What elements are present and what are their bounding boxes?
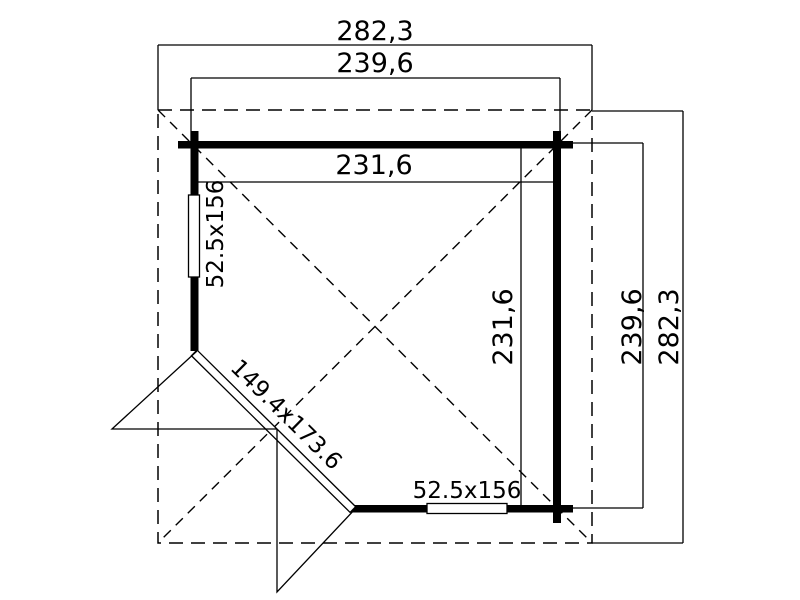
left-window bbox=[189, 195, 200, 277]
left-wall-upper-segment bbox=[191, 131, 199, 195]
floor-plan-drawing: 282,3 239,6 231,6 231,6 239,6 282,3 bbox=[0, 0, 800, 600]
corner-door bbox=[191, 350, 355, 512]
floor-plan-canvas: 282,3 239,6 231,6 231,6 239,6 282,3 bbox=[0, 0, 800, 600]
dimension-label-outer-depth: 239,6 bbox=[617, 288, 648, 365]
dimension-label-overall-depth: 282,3 bbox=[654, 288, 685, 365]
right-wall bbox=[553, 131, 561, 523]
bottom-window bbox=[427, 504, 507, 514]
bottom-window-size-label: 52.5x156 bbox=[413, 478, 522, 504]
top-wall bbox=[178, 141, 573, 149]
bottom-wall-left-segment bbox=[350, 505, 427, 513]
top-dimensions-group: 282,3 239,6 231,6 bbox=[158, 16, 592, 182]
dimension-label-overall-width: 282,3 bbox=[336, 16, 413, 47]
dimension-label-inner-width: 231,6 bbox=[335, 150, 412, 181]
corner-door-group: 149.4x173.6 bbox=[112, 350, 356, 592]
left-wall-lower-segment bbox=[191, 277, 199, 351]
dimension-label-outer-width: 239,6 bbox=[336, 48, 413, 79]
dimension-label-inner-depth: 231,6 bbox=[488, 288, 519, 365]
door-size-label: 149.4x173.6 bbox=[225, 355, 347, 476]
bottom-wall-right-segment bbox=[507, 505, 573, 513]
left-window-size-label: 52.5x156 bbox=[203, 180, 229, 289]
